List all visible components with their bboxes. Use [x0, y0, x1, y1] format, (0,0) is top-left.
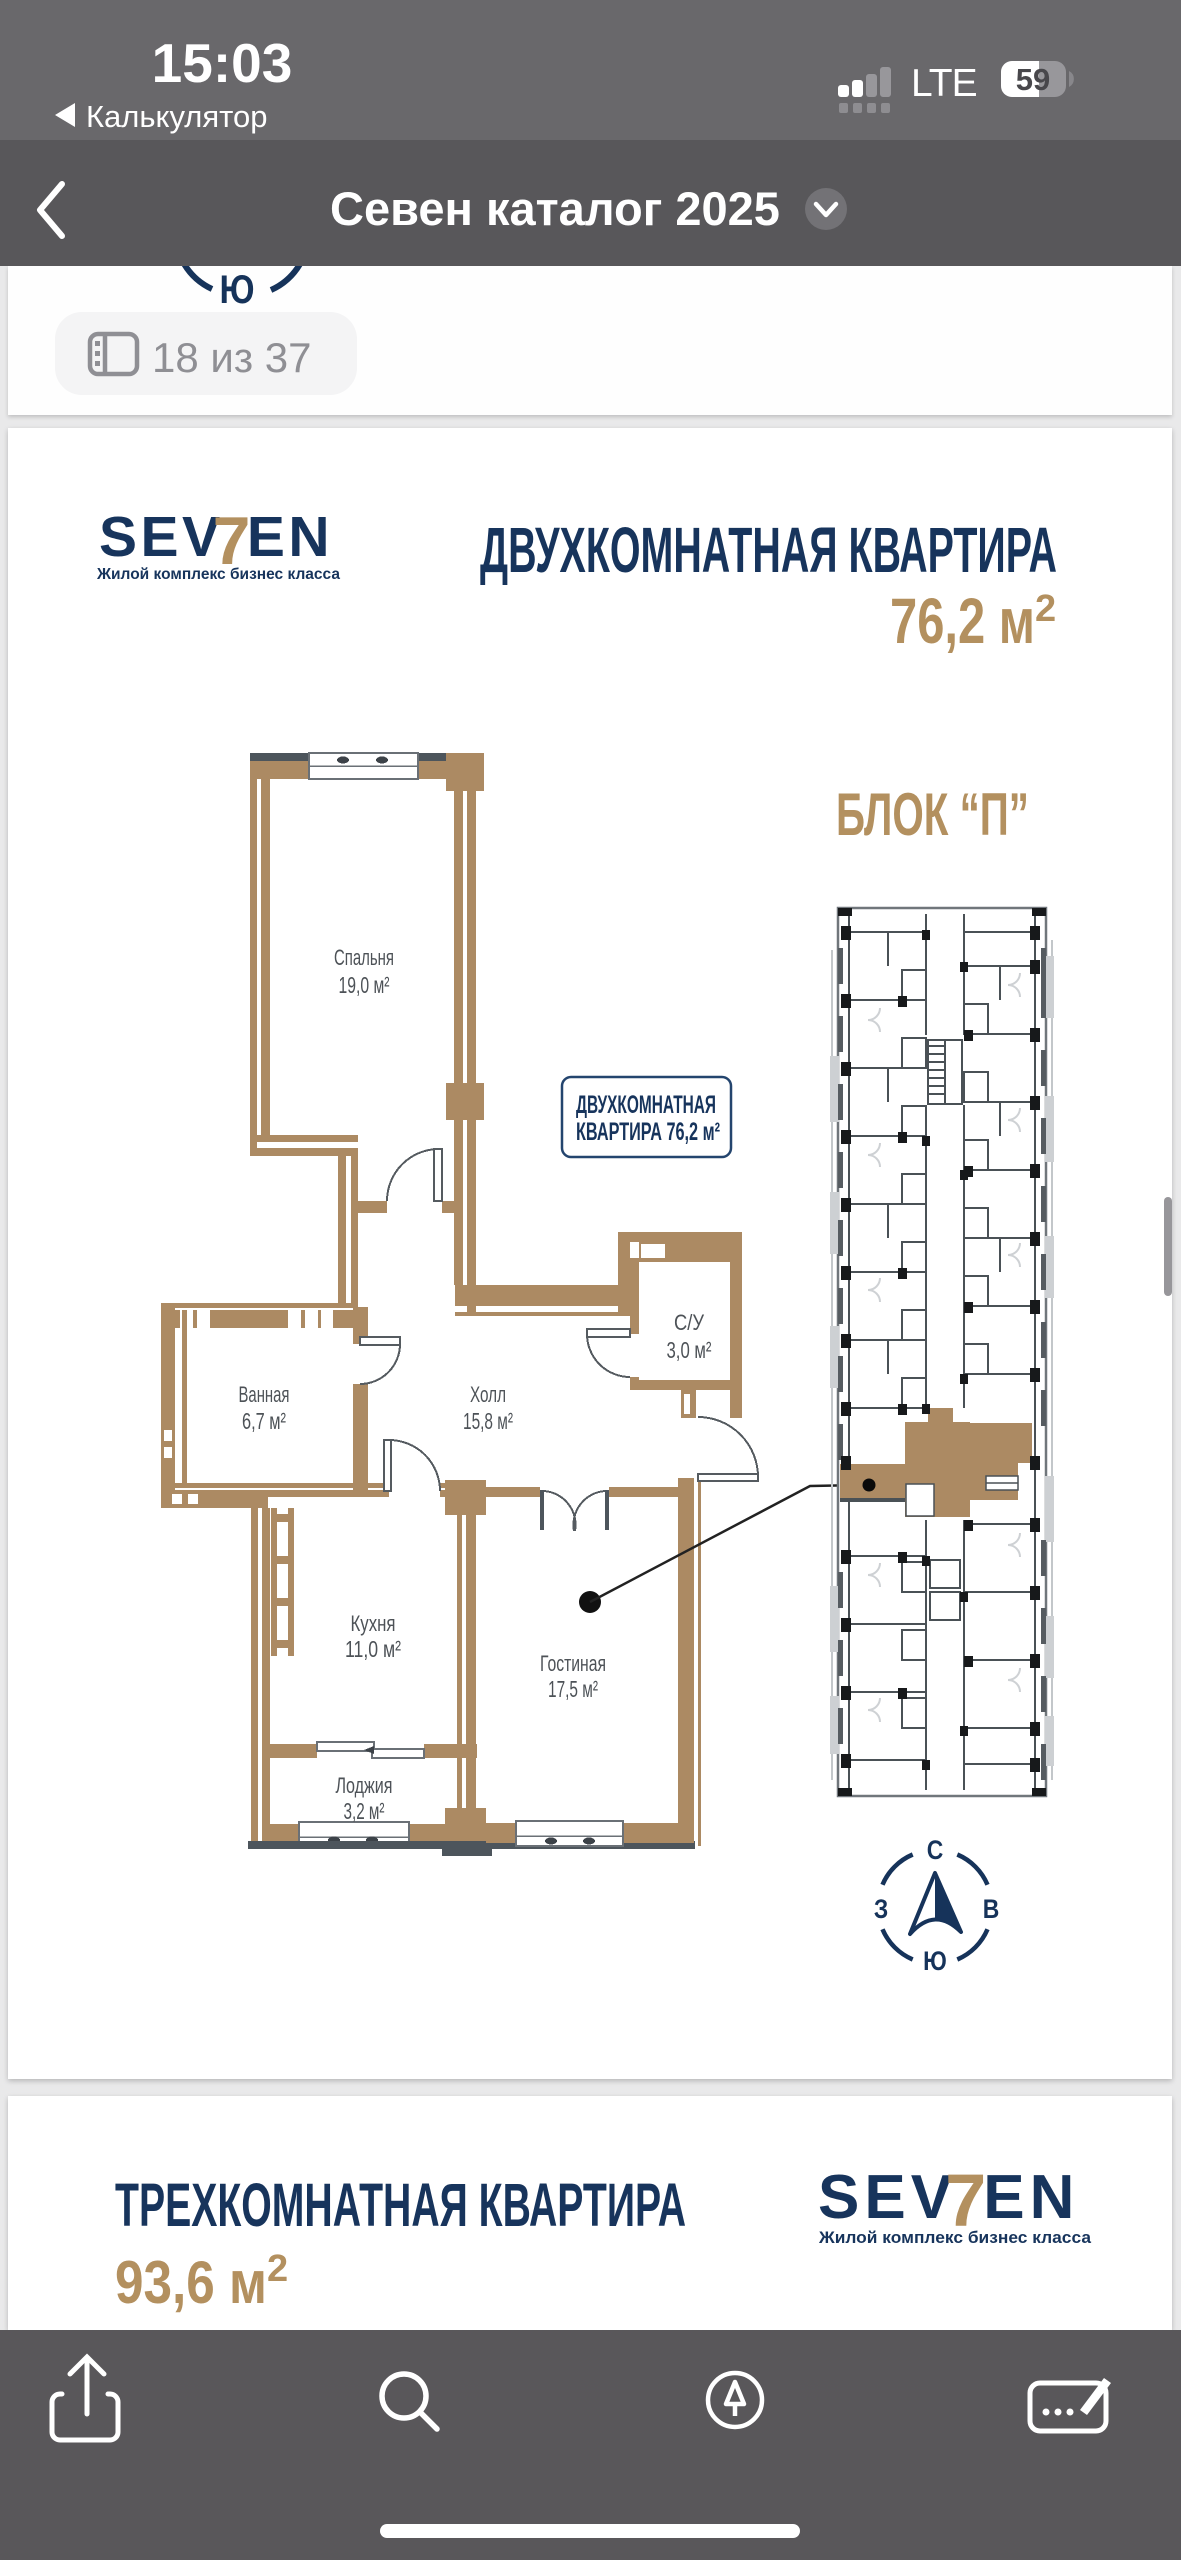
svg-text:17,5 м²: 17,5 м² [548, 1676, 598, 1702]
svg-text:59: 59 [1016, 62, 1050, 97]
svg-text:З: З [874, 1894, 888, 1924]
svg-text:Жилой комплекс бизнес класса: Жилой комплекс бизнес класса [96, 566, 340, 583]
svg-text:15:03: 15:03 [152, 32, 293, 94]
svg-text:93,6 м2: 93,6 м2 [115, 2248, 288, 2316]
svg-text:LTE: LTE [911, 62, 977, 105]
svg-text:Кухня: Кухня [351, 1611, 396, 1636]
svg-text:ТРЕХКОМНАТНАЯ КВАРТИРА: ТРЕХКОМНАТНАЯ КВАРТИРА [115, 2171, 686, 2239]
svg-text:Ю: Ю [923, 1946, 947, 1976]
svg-text:В: В [983, 1894, 1000, 1924]
svg-text:18 из 37: 18 из 37 [152, 334, 312, 381]
svg-text:Жилой комплекс бизнес класса: Жилой комплекс бизнес класса [818, 2228, 1092, 2247]
svg-text:ДВУХКОМНАТНАЯ КВАРТИРА: ДВУХКОМНАТНАЯ КВАРТИРА [480, 514, 1057, 586]
svg-text:3,0 м²: 3,0 м² [667, 1337, 712, 1363]
svg-text:С: С [927, 1835, 944, 1865]
svg-text:Холл: Холл [470, 1382, 506, 1407]
svg-text:ДВУХКОМНАТНАЯ: ДВУХКОМНАТНАЯ [576, 1091, 716, 1119]
svg-text:Ю: Ю [219, 266, 254, 311]
svg-text:Калькулятор: Калькулятор [86, 99, 267, 134]
svg-text:БЛОК “П”: БЛОК “П” [836, 781, 1029, 848]
svg-text:11,0 м²: 11,0 м² [345, 1636, 401, 1662]
svg-text:19,0 м²: 19,0 м² [339, 972, 390, 998]
svg-text:Гостиная: Гостиная [540, 1651, 606, 1676]
svg-text:3,2 м²: 3,2 м² [344, 1798, 385, 1824]
svg-text:КВАРТИРА 76,2 м²: КВАРТИРА 76,2 м² [576, 1118, 720, 1146]
svg-text:Лоджия: Лоджия [336, 1773, 393, 1798]
svg-text:76,2 м2: 76,2 м2 [890, 585, 1056, 657]
svg-text:Спальня: Спальня [334, 945, 394, 970]
svg-text:6,7 м²: 6,7 м² [242, 1408, 286, 1434]
svg-text:Севен каталог 2025: Севен каталог 2025 [330, 182, 780, 235]
svg-text:С/У: С/У [674, 1310, 705, 1335]
svg-text:15,8 м²: 15,8 м² [463, 1408, 513, 1434]
svg-text:Ванная: Ванная [239, 1382, 290, 1407]
